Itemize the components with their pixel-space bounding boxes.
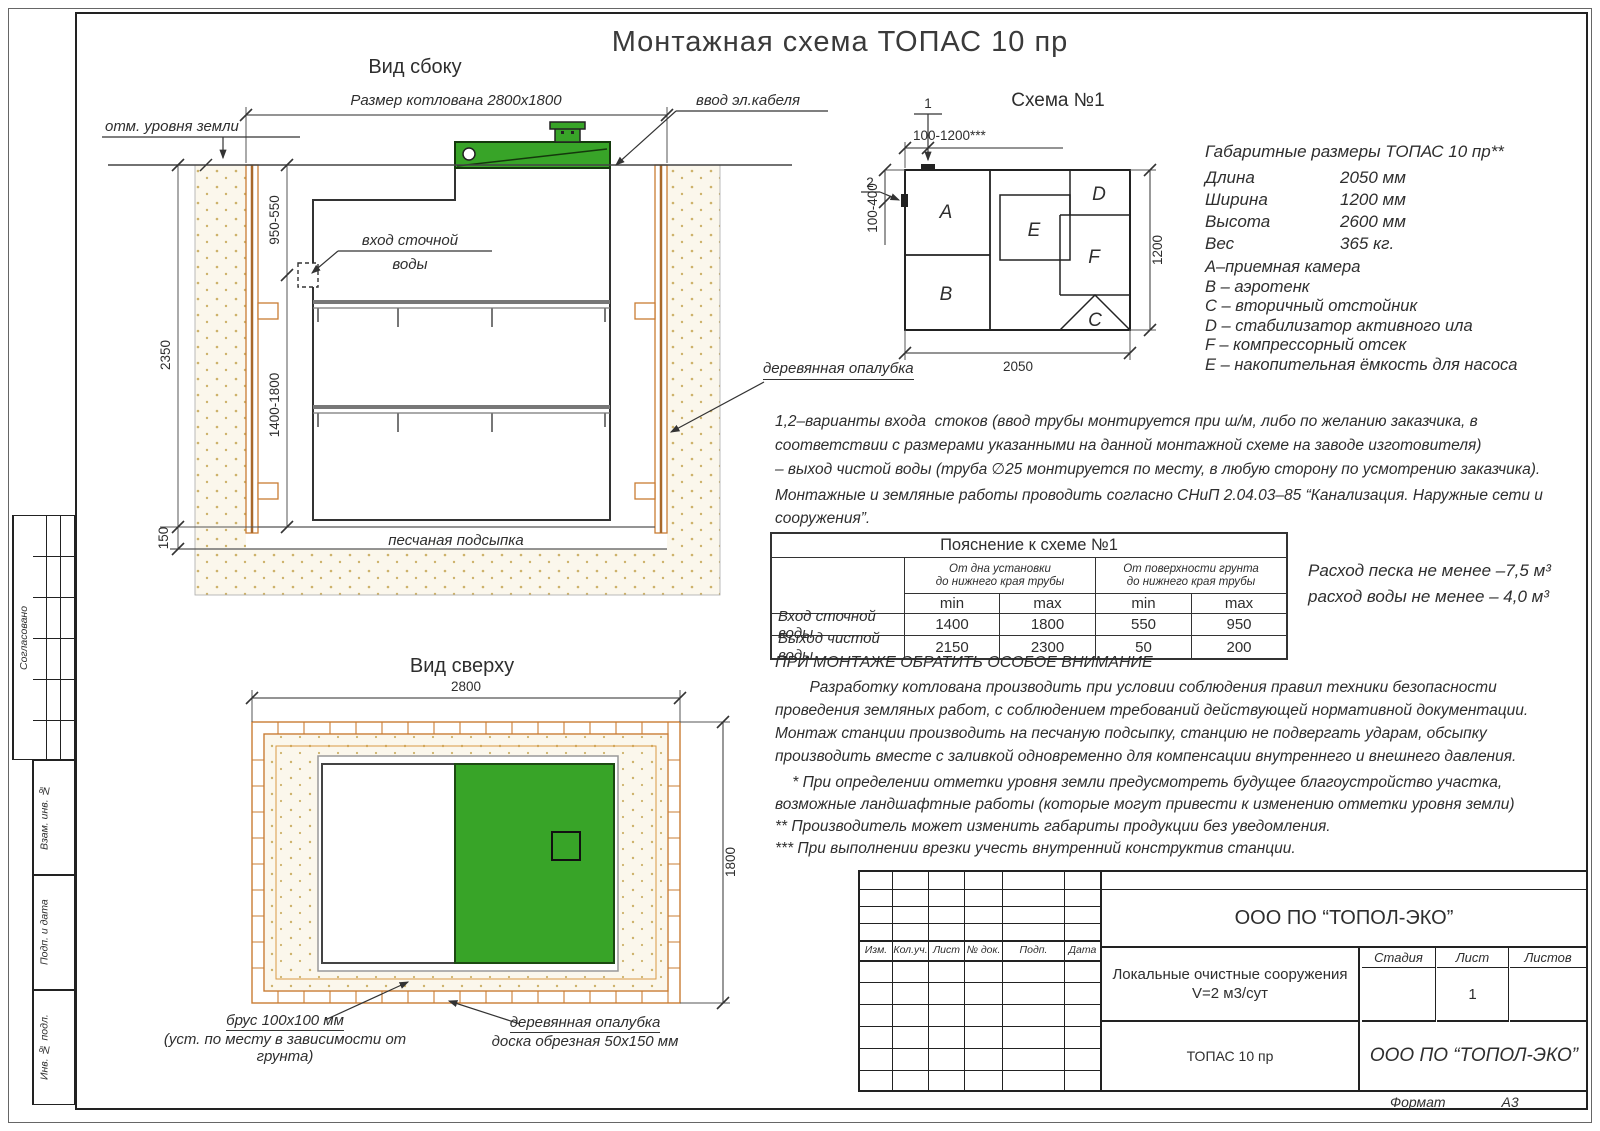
footnotes: * При определении отметки уровня земли п… bbox=[775, 772, 1585, 860]
dim-950-550: 950-550 bbox=[267, 195, 282, 245]
legend-item: Е – накопительная ёмкость для насоса bbox=[1205, 356, 1518, 376]
stamp-stage-label: Стадия bbox=[1362, 948, 1436, 968]
paragraph-snip: Монтажные и земляные работы проводить со… bbox=[775, 484, 1575, 530]
top-view-dim-width: 2800 bbox=[451, 679, 481, 694]
inlet-label-line1: вход сточной bbox=[362, 232, 459, 249]
stamp-col-izm: Изм. bbox=[860, 940, 892, 960]
drawing-sheet: Согласовано Взам. инв. № Подп. и дата Ин… bbox=[0, 0, 1600, 1131]
stamp-top-strip bbox=[1102, 872, 1586, 890]
legend-item: F – компрессорный отсек bbox=[1205, 336, 1518, 356]
table-max-header: max bbox=[1192, 594, 1286, 614]
compartment-e: E bbox=[1028, 220, 1041, 241]
stamp-sheet-label: Лист bbox=[1437, 948, 1509, 968]
spec-row: Высота 2600 мм bbox=[1205, 212, 1515, 234]
format-row: Формат А3 bbox=[1390, 1094, 1519, 1110]
vent-hatch bbox=[552, 832, 580, 860]
stamp-stage-value bbox=[1362, 968, 1436, 1022]
beam-label-line2: (уст. по месту в зависимости от грунта) bbox=[150, 1031, 420, 1065]
table-cell: 550 bbox=[1096, 614, 1192, 636]
table-title: Пояснение к схеме №1 bbox=[772, 534, 1286, 558]
schema1-dim-left: 100-400 bbox=[865, 183, 880, 233]
sidebar-agreed-label: Согласовано bbox=[13, 516, 34, 759]
legend-item: D – стабилизатор активного ила bbox=[1205, 317, 1518, 337]
table-cell: 200 bbox=[1192, 636, 1286, 658]
side-view-drawing: Размер котлована 2800х1800 отм. уровня з… bbox=[80, 55, 850, 615]
stamp-sheet-number: 1 bbox=[1437, 968, 1509, 1022]
stamp-col-koluch: Кол.уч. bbox=[893, 940, 928, 960]
compartment-legend: А–приемная камера В – аэротенк С – втори… bbox=[1205, 258, 1518, 375]
dim-2350: 2350 bbox=[158, 340, 173, 370]
pit-size-label: Размер котлована 2800х1800 bbox=[350, 92, 562, 109]
table-max-header: max bbox=[1000, 594, 1096, 614]
stamp-revision-grid: Изм. Кол.уч. Лист № док. Подп. Дата bbox=[860, 872, 1102, 1090]
title-block: Изм. Кол.уч. Лист № док. Подп. Дата ООО … bbox=[858, 870, 1588, 1092]
tank-lid-plan bbox=[455, 764, 614, 963]
explanation-table: Пояснение к схеме №1 От дна установки до… bbox=[770, 532, 1288, 660]
sand-bedding-label: песчаная подсыпка bbox=[388, 532, 523, 549]
legend-item: В – аэротенк bbox=[1205, 278, 1518, 298]
legend-item: С – вторичный отстойник bbox=[1205, 297, 1518, 317]
vent-icon bbox=[550, 122, 585, 142]
stamp-sheets-label: Листов bbox=[1510, 948, 1586, 968]
formwork-board-line1: деревянная опалубка bbox=[510, 1014, 661, 1033]
schema1-drawing: Схема №1 A B E D F C 1 100-1200*** bbox=[858, 90, 1188, 380]
spec-row: Вес 365 кг. bbox=[1205, 234, 1515, 256]
sidebar-inv-label: Инв. № подл. bbox=[33, 991, 55, 1104]
schema1-title: Схема №1 bbox=[1011, 90, 1104, 111]
inlet-label-line2: воды bbox=[392, 256, 427, 273]
stamp-company-italic: ООО ПО “ТОПОЛ-ЭКО” bbox=[1362, 1022, 1586, 1090]
compartment-f: F bbox=[1088, 247, 1101, 268]
stamp-sheets-value bbox=[1510, 968, 1586, 1022]
compartment-a: A bbox=[939, 202, 953, 223]
formwork-board-label: деревянная опалубка доска обрезная 50х15… bbox=[455, 1014, 715, 1050]
format-label: Формат bbox=[1390, 1094, 1446, 1110]
dim-150: 150 bbox=[156, 527, 171, 550]
schema1-dim-top: 100-1200*** bbox=[913, 128, 987, 143]
table-group2-header: От поверхности грунта до нижнего края тр… bbox=[1096, 558, 1286, 594]
sidebar-podp-block: Подп. и дата bbox=[32, 875, 75, 990]
sidebar-vzam-block: Взам. инв. № bbox=[32, 760, 75, 875]
stamp-project: Локальные очистные сооружения V=2 м3/сут bbox=[1102, 948, 1360, 1022]
pit-area bbox=[246, 165, 667, 549]
schema1-marker1: 1 bbox=[924, 96, 932, 111]
stamp-col-data: Дата bbox=[1065, 940, 1100, 960]
consumption-note: Расход песка не менее –7,5 м³ расход вод… bbox=[1308, 558, 1551, 610]
inlet-opening bbox=[298, 263, 318, 287]
attention-body: Разработку котлована производить при усл… bbox=[775, 676, 1585, 768]
table-blank-cell bbox=[772, 558, 905, 614]
paragraph-variants: 1,2–варианты входа стоков (ввод трубы мо… bbox=[775, 410, 1575, 482]
table-cell: 1800 bbox=[1000, 614, 1096, 636]
dim-1400-1800: 1400-1800 bbox=[267, 373, 282, 438]
stamp-product: ТОПАС 10 пр bbox=[1102, 1022, 1360, 1090]
sidebar-inv-block: Инв. № подл. bbox=[32, 990, 75, 1105]
spec-row: Ширина 1200 мм bbox=[1205, 190, 1515, 212]
table-min-header: min bbox=[1096, 594, 1192, 614]
table-group1-header: От дна установки до нижнего края трубы bbox=[905, 558, 1096, 594]
compartment-b: B bbox=[940, 284, 953, 305]
specs-rows: Длина 2050 мм Ширина 1200 мм Высота 2600… bbox=[1205, 168, 1515, 256]
table-cell: 950 bbox=[1192, 614, 1286, 636]
cable-entry-label: ввод эл.кабеля bbox=[696, 92, 800, 109]
compartment-d: D bbox=[1092, 184, 1106, 205]
spec-row: Длина 2050 мм bbox=[1205, 168, 1515, 190]
stamp-company: ООО ПО “ТОПОЛ-ЭКО” bbox=[1102, 890, 1586, 948]
sidebar-agreed-block: Согласовано bbox=[12, 515, 75, 760]
stamp-col-ndok: № док. bbox=[965, 940, 1002, 960]
stamp-col-podp: Подп. bbox=[1003, 940, 1064, 960]
beam-label-line1: брус 100х100 мм bbox=[226, 1012, 344, 1031]
specs-title: Габаритные размеры ТОПАС 10 пр** bbox=[1205, 142, 1504, 162]
table-cell: 1400 bbox=[905, 614, 1000, 636]
beam-label: брус 100х100 мм (уст. по месту в зависим… bbox=[150, 1012, 420, 1065]
compartment-c: C bbox=[1088, 310, 1102, 331]
top-view-dim-height: 1800 bbox=[723, 847, 738, 877]
legend-item: А–приемная камера bbox=[1205, 258, 1518, 278]
sidebar-podp-label: Подп. и дата bbox=[33, 876, 55, 989]
attention-title: ПРИ МОНТАЖЕ ОБРАТИТЬ ОСОБОЕ ВНИМАНИЕ bbox=[775, 654, 1153, 672]
stamp-col-list: Лист bbox=[929, 940, 964, 960]
sidebar-vzam-label: Взам. инв. № bbox=[33, 761, 55, 874]
top-view-title: Вид сверху bbox=[382, 655, 542, 678]
ground-level-label: отм. уровня земли bbox=[105, 118, 239, 135]
schema1-dim-right: 1200 bbox=[1150, 235, 1165, 265]
tank-lid bbox=[455, 122, 610, 168]
sidebar-agreed-grid bbox=[33, 516, 76, 761]
schema1-dim-bottom: 2050 bbox=[1003, 359, 1033, 374]
format-value: А3 bbox=[1501, 1094, 1518, 1110]
table-min-header: min bbox=[905, 594, 1000, 614]
formwork-board-line2: доска обрезная 50х150 мм bbox=[455, 1033, 715, 1050]
